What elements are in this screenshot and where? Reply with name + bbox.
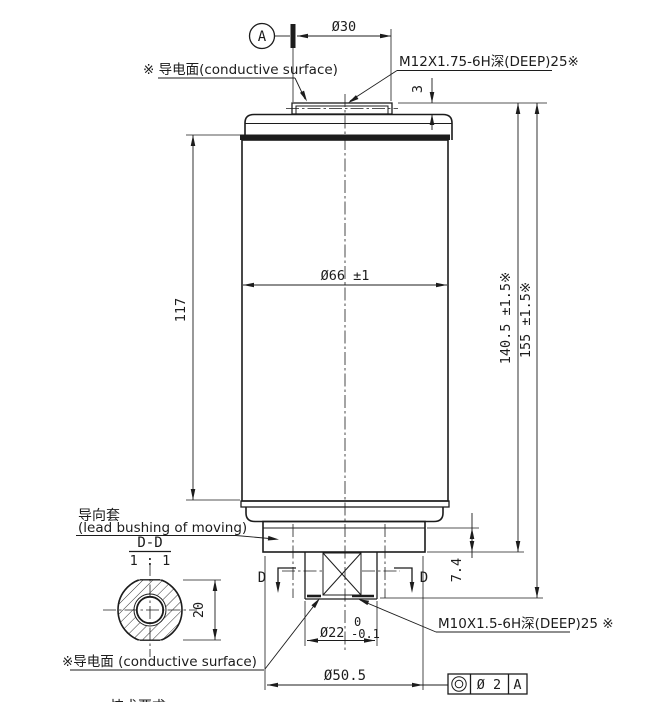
section-cut-indicator: D D	[258, 568, 428, 593]
note-m10-thread: M10X1.5-6H深(DEEP)25 ※	[438, 616, 614, 632]
note-conductive-top: ※ 导电面(conductive surface)	[143, 62, 338, 78]
technical-drawing: D D A Ø30 3 Ø66 ±1	[0, 0, 660, 702]
dim-3: 3	[410, 85, 426, 93]
feature-control-frame: Ø 2 A	[448, 674, 527, 694]
dim-117: 117	[173, 298, 189, 322]
dim-140-5: 140.5 ±1.5※	[498, 272, 514, 365]
datum-target-bar	[291, 24, 296, 48]
dim-dia50-5: Ø50.5	[324, 668, 366, 684]
concentricity-icon	[452, 677, 466, 691]
dim-dia22-lower-tol: -0.1	[351, 627, 380, 641]
dim-7-4: 7.4	[449, 558, 465, 582]
fcf-datum: A	[513, 677, 521, 693]
drawing-sheet: D D A Ø30 3 Ø66 ±1	[0, 0, 660, 702]
note-conductive-bottom: ※导电面 (conductive surface)	[62, 654, 257, 670]
guide-bushing-flange	[263, 522, 425, 553]
datum-letter: A	[258, 29, 267, 45]
section-letter-right: D	[420, 570, 428, 586]
label-bushing-en: (lead bushing of moving)	[78, 520, 247, 536]
dim-dia22: Ø22	[320, 625, 344, 641]
main-view: D D	[240, 94, 452, 650]
top-seal-band	[240, 135, 450, 141]
dimensions: Ø30 3 Ø66 ±1 117 140.5 ±1.5※ 155 ±1.5※	[173, 19, 547, 690]
dim-dia66: Ø66 ±1	[321, 268, 370, 284]
dim-155: 155 ±1.5※	[518, 282, 534, 358]
dim-dia30: Ø30	[332, 19, 356, 35]
bottom-cap	[246, 508, 443, 522]
fcf-tolerance: Ø 2	[477, 677, 501, 693]
moving-stem	[293, 524, 385, 599]
note-m12-thread: M12X1.75-6H深(DEEP)25※	[399, 54, 579, 70]
dim-20: 20	[191, 602, 207, 618]
section-view-dd: D-D 1 : 1 20	[103, 535, 221, 657]
section-title: D-D	[137, 535, 162, 551]
